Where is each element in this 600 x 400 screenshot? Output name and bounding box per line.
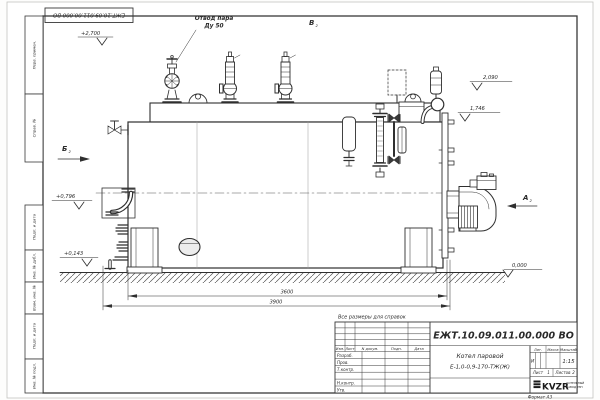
role-utv: Утв. (337, 388, 345, 393)
stamp-vzam-inv: Взам. инв. № (32, 285, 37, 311)
elevation-2090-value: 2,090 (483, 75, 499, 81)
stamp-inv-dubl: Инв. № дубл. (32, 253, 37, 279)
change-header-data: Дата (413, 347, 423, 351)
dimension-overall-length-value: 3900 (270, 300, 283, 306)
drawing-sheet: Перв. примен. Справ. № Подп. и дата Инв.… (0, 0, 600, 400)
logo-bars-icon (534, 381, 541, 383)
steam-outlet-label-1: Отвод пара (195, 16, 234, 22)
change-header-podp: Подп. (391, 347, 402, 351)
support-leg-left (127, 228, 162, 273)
lit-label: Лит. (533, 348, 542, 352)
view-b-letter: Б (62, 145, 67, 153)
doc-number-flipped: ЕЖТ.10.09.011.00.000 ВО (52, 11, 125, 17)
sheet-label: Лист (532, 370, 544, 375)
scale-value: 1:15 (562, 359, 575, 365)
elevation-1746-value: 1,746 (470, 106, 486, 112)
stamp-perv-primen: Перв. примен. (32, 41, 37, 70)
sheets-value: 2 (572, 370, 575, 375)
stamp-inv-podl: Инв. № подл. (32, 363, 37, 389)
dimension-shell-length-value: 3600 (281, 290, 294, 296)
manhole (179, 239, 200, 256)
boiler-assembly-drawing: Перв. примен. Справ. № Подп. и дата Инв.… (0, 0, 600, 400)
mass-label: Масса (547, 348, 558, 352)
view-a-letter: А (522, 194, 528, 202)
logo-text: KVZR (542, 382, 569, 392)
format-note: Формат А3 (528, 394, 553, 400)
elevation-0143-value: +0,143 (64, 251, 83, 257)
change-header-ndoc: N докум. (362, 347, 379, 351)
scale-label: Масштаб (560, 348, 577, 352)
role-tkontr: Т.контр. (337, 367, 354, 372)
stamp-sprav-no: Справ. № (32, 119, 37, 138)
change-header-izm: Изм. (336, 347, 344, 351)
elevation-0796-value: +0,796 (56, 194, 76, 200)
product-name-line2: Е-1,0-0,9-170-ТЖ(Ж) (450, 365, 510, 371)
stamp-podp-data-1: Подп. и дата (32, 213, 37, 240)
support-leg-right (401, 228, 436, 273)
control-box (399, 102, 424, 122)
ground-hatch (60, 273, 505, 284)
sheets-label: Листов (555, 370, 572, 375)
doc-number: ЕЖТ.10.09.011.00.000 ВО (433, 331, 574, 342)
role-nkontr: Н.контр. (337, 381, 355, 386)
sheet-value: 1 (547, 370, 550, 375)
elevation-0000-value: 0,000 (512, 263, 528, 269)
steam-outlet-label-2: Ду 50 (203, 24, 223, 30)
product-name-line1: Котел паровой (456, 353, 503, 360)
change-header-list: Лист (344, 347, 355, 351)
elevation-2700-value: +2,700 (81, 31, 101, 37)
logo-subtext-2: ЗАВОД РЭП (567, 385, 583, 389)
reference-note: Все размеры для справок (338, 315, 406, 321)
stamp-podp-data-2: Подп. и дата (32, 322, 37, 349)
role-razrab: Разраб. (337, 353, 353, 358)
role-prov: Пров. (337, 360, 349, 365)
title-block: Изм. Лист N докум. Подп. Дата Разраб. Пр… (335, 322, 584, 393)
view-v-letter: В (309, 19, 314, 27)
